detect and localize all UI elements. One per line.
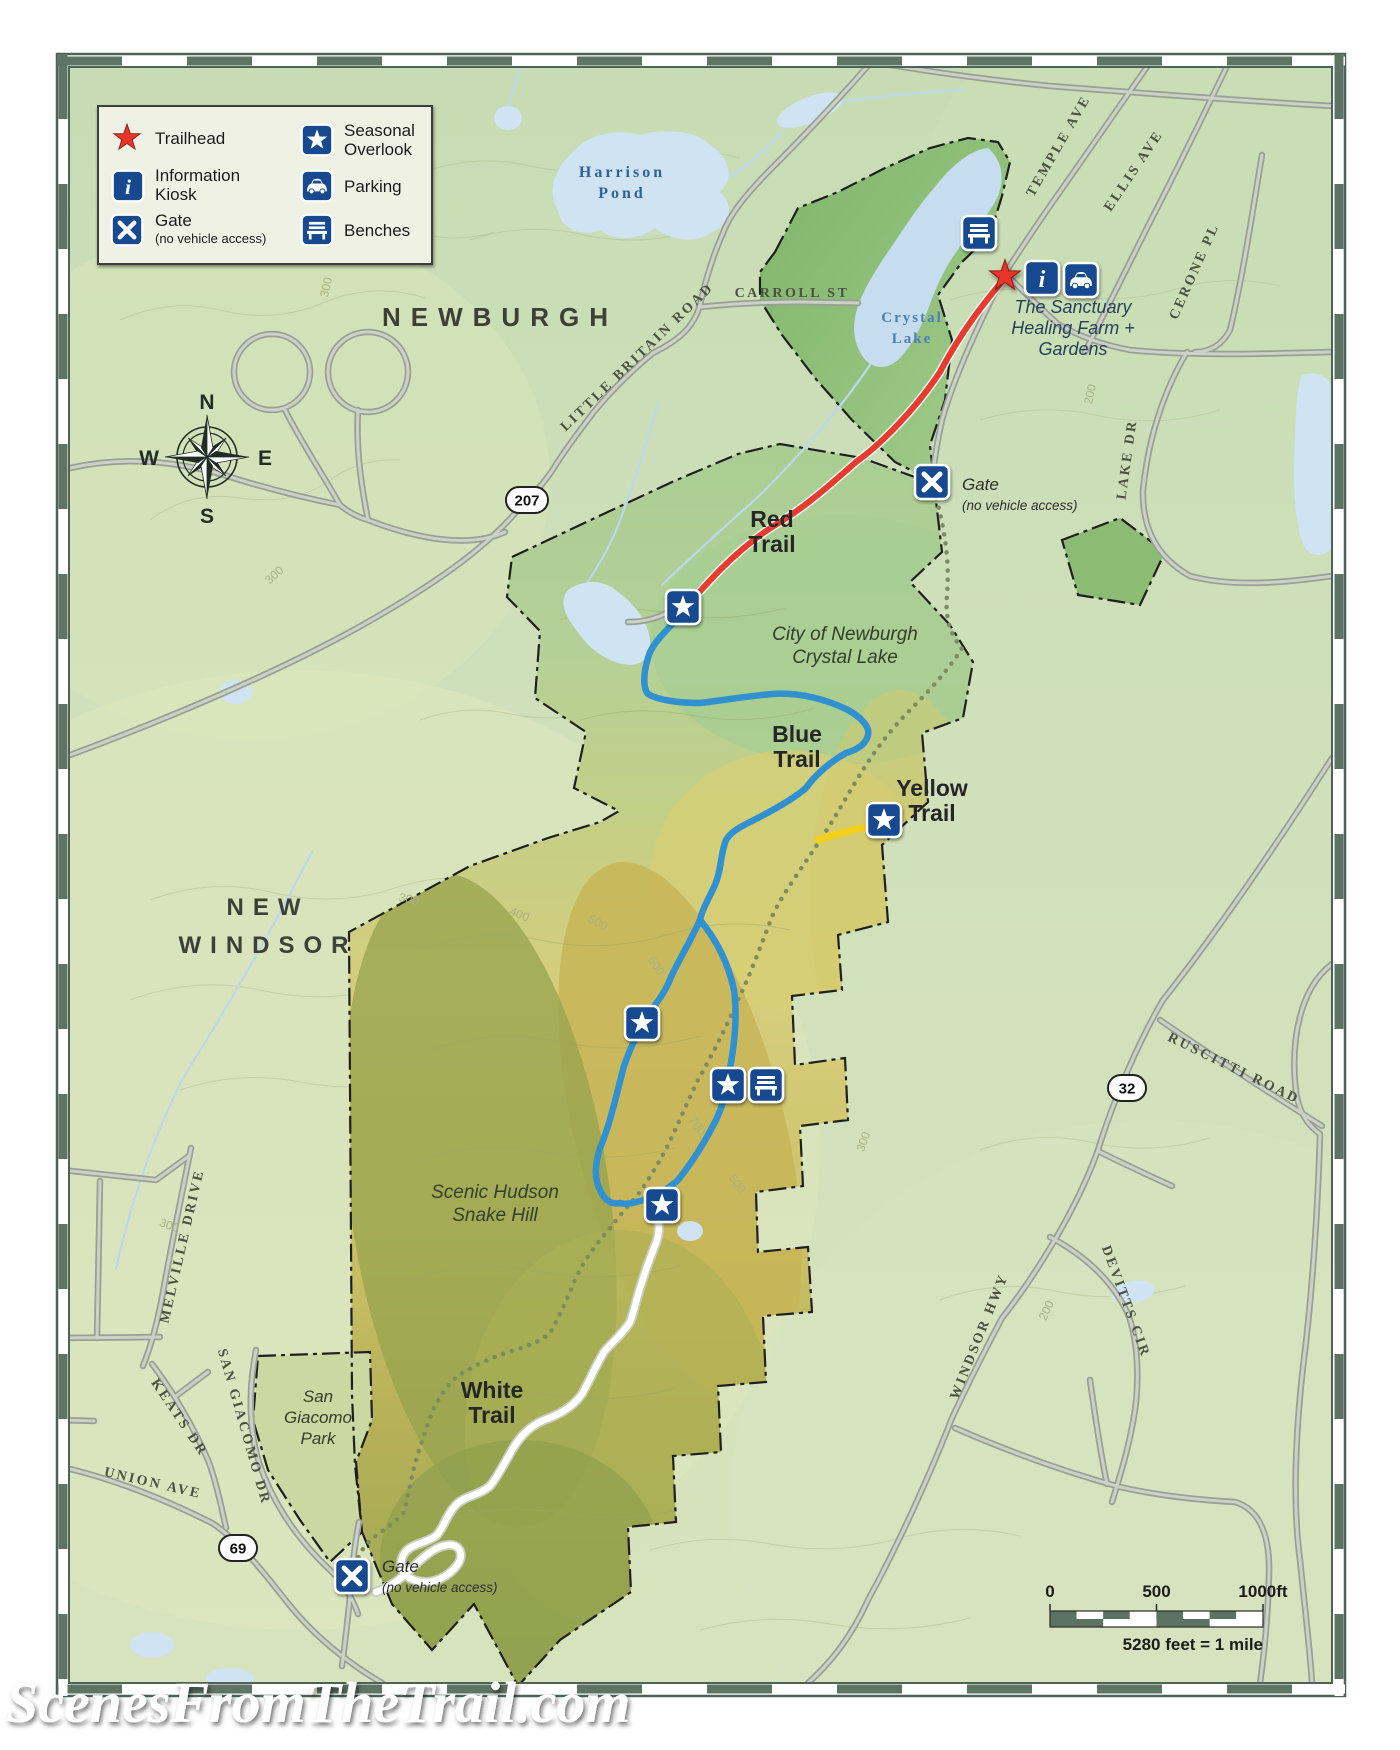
legend-trailhead-label: Trailhead <box>155 129 225 148</box>
label-crystal-lake-1: Crystal <box>881 310 943 326</box>
legend-parking-label: Parking <box>344 177 402 196</box>
information-kiosk-icon: i <box>1025 261 1059 295</box>
legend-gate-icon <box>112 215 143 246</box>
gate-icon-south <box>335 1559 369 1593</box>
route-shield-69: 69 <box>219 1535 257 1561</box>
label-harrison-pond-1: Harrison <box>579 164 665 181</box>
label-sanctuary-3: Gardens <box>1038 339 1107 359</box>
legend-parking-icon <box>302 171 333 202</box>
gate-icon-north <box>915 465 949 499</box>
svg-text:69: 69 <box>230 1541 247 1558</box>
svg-text:i: i <box>125 175 131 199</box>
label-san-giacomo-2: Giacomo <box>284 1408 352 1427</box>
gate-south-sub: (no vehicle access) <box>382 1580 498 1595</box>
legend-overlook-icon <box>302 125 333 156</box>
label-white-trail-1: White <box>461 1377 524 1403</box>
svg-text:i: i <box>1039 267 1046 293</box>
pond-bottom-left-1 <box>130 1632 174 1658</box>
benches-icon-mid <box>749 1068 783 1102</box>
legend-overlook-label-2: Overlook <box>344 140 413 159</box>
label-city-newburgh-2: Crystal Lake <box>792 647 898 668</box>
trail-map-page: N E S W NEWBURGH NEW WINDSOR LITTLE BRIT… <box>0 0 1400 1750</box>
overlook-icon-3 <box>625 1006 659 1040</box>
scale-note: 5280 feet = 1 mile <box>1123 1635 1263 1654</box>
pond-center-small <box>677 1221 703 1241</box>
label-blue-trail-1: Blue <box>772 721 822 747</box>
legend-info-icon: i <box>113 171 144 202</box>
gate-north-label: Gate <box>962 475 999 494</box>
town-label-new-windsor-1: NEW <box>227 894 310 921</box>
svg-text:500: 500 <box>1142 1582 1170 1601</box>
label-yellow-trail-1: Yellow <box>896 775 968 801</box>
gate-north-sub: (no vehicle access) <box>962 498 1078 513</box>
pond-right-edge <box>1294 374 1336 555</box>
small-pond-nw <box>494 106 522 130</box>
label-red-trail-1: Red <box>750 506 793 532</box>
svg-text:32: 32 <box>1119 1081 1136 1098</box>
svg-text:1000ft: 1000ft <box>1238 1582 1287 1601</box>
label-harrison-pond-2: Pond <box>598 185 646 202</box>
legend-benches-icon <box>302 215 333 246</box>
road-label-carroll: CARROLL ST <box>735 286 850 301</box>
legend-info-label-2: Kiosk <box>155 185 197 204</box>
benches-icon-north <box>962 216 996 250</box>
svg-text:207: 207 <box>514 493 539 510</box>
overlook-icon-2 <box>867 803 901 837</box>
compass-w: W <box>139 447 159 470</box>
label-crystal-lake-2: Lake <box>892 331 933 347</box>
compass-s: S <box>200 505 214 528</box>
legend-info-label-1: Information <box>155 166 240 185</box>
label-san-giacomo-1: San <box>303 1387 333 1406</box>
watermark-text: ScenesFromTheTrail.com <box>6 1670 631 1735</box>
overlook-icon-5 <box>645 1188 679 1222</box>
label-sanctuary-2: Healing Farm + <box>1011 318 1135 338</box>
map-canvas: N E S W NEWBURGH NEW WINDSOR LITTLE BRIT… <box>0 0 1400 1750</box>
label-snake-hill-2: Snake Hill <box>452 1205 538 1226</box>
overlook-icon-1 <box>666 590 700 624</box>
legend-overlook-label-1: Seasonal <box>344 121 415 140</box>
label-city-newburgh-1: City of Newburgh <box>772 624 918 645</box>
town-label-newburgh: NEWBURGH <box>382 302 618 332</box>
label-san-giacomo-3: Park <box>301 1429 337 1448</box>
gate-south-label: Gate <box>382 1557 419 1576</box>
label-blue-trail-2: Trail <box>773 746 820 772</box>
label-yellow-trail-2: Trail <box>908 800 955 826</box>
svg-text:0: 0 <box>1045 1582 1054 1601</box>
label-sanctuary-1: The Sanctuary <box>1014 297 1132 317</box>
legend-benches-label: Benches <box>344 221 410 240</box>
legend-box: Trailhead i Information Kiosk Gate (no v… <box>98 106 432 264</box>
compass-e: E <box>258 447 272 470</box>
town-label-new-windsor-2: WINDSOR <box>179 932 358 959</box>
label-red-trail-2: Trail <box>748 531 795 557</box>
label-white-trail-2: Trail <box>468 1402 515 1428</box>
parking-icon <box>1064 263 1098 297</box>
route-shield-32: 32 <box>1108 1075 1146 1101</box>
label-snake-hill-1: Scenic Hudson <box>431 1182 559 1203</box>
compass-n: N <box>199 391 214 414</box>
legend-gate-label-1: Gate <box>155 211 192 230</box>
overlook-icon-4 <box>711 1068 745 1102</box>
route-shield-207: 207 <box>506 487 548 513</box>
legend-gate-label-2: (no vehicle access) <box>155 231 266 246</box>
